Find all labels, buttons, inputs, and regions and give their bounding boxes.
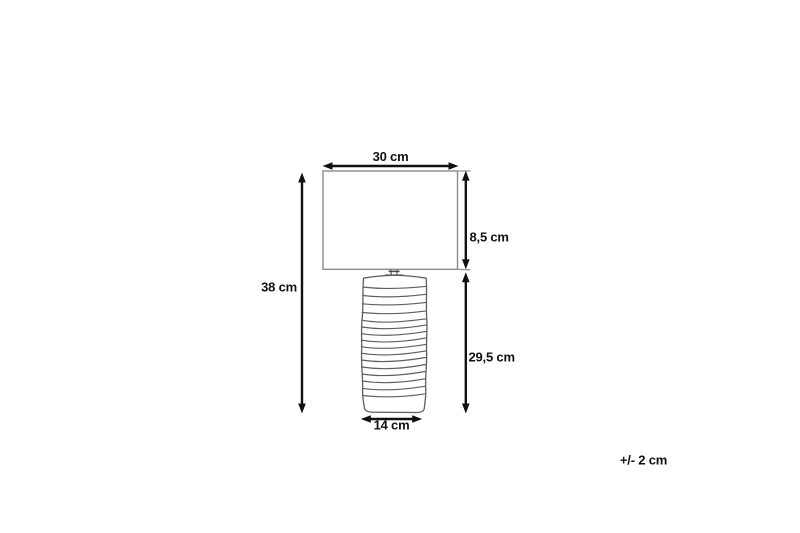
arrowhead-down-icon — [298, 404, 306, 414]
dim-shade-width: 30 cm — [323, 149, 459, 170]
arrowhead-left-icon — [323, 162, 333, 170]
arrowhead-left-icon — [361, 415, 371, 423]
arrowhead-up-icon — [298, 173, 306, 183]
lamp-diagram-canvas: 30 cm 8,5 cm 29,5 cm 38 cm 1 — [0, 0, 800, 533]
arrowhead-down-icon — [462, 259, 470, 269]
dim-base-width: 14 cm — [361, 415, 422, 432]
dim-shade-height: 8,5 cm — [462, 171, 509, 269]
dim-total-height: 38 cm — [261, 173, 306, 414]
dimension-diagram: 30 cm 8,5 cm 29,5 cm 38 cm 1 — [0, 0, 800, 533]
lamp-shade — [323, 171, 471, 270]
lamp-shade-outline — [323, 171, 458, 269]
neck-cap — [389, 271, 400, 273]
dim-base-height: 29,5 cm — [462, 272, 515, 413]
base-width-label: 14 cm — [374, 418, 410, 433]
total-height-label: 38 cm — [261, 280, 297, 295]
tolerance-note: +/- 2 cm — [620, 453, 667, 468]
arrowhead-up-icon — [462, 272, 470, 282]
base-height-label: 29,5 cm — [469, 350, 515, 365]
arrowhead-down-icon — [462, 404, 470, 414]
lamp-base — [361, 275, 427, 412]
extension-line-shade-bottom — [458, 269, 471, 270]
arrowhead-right-icon — [449, 162, 459, 170]
shade-width-label: 30 cm — [373, 149, 409, 164]
arrowhead-right-icon — [412, 415, 422, 423]
shade-height-label: 8,5 cm — [470, 230, 509, 245]
arrowhead-up-icon — [462, 171, 470, 181]
